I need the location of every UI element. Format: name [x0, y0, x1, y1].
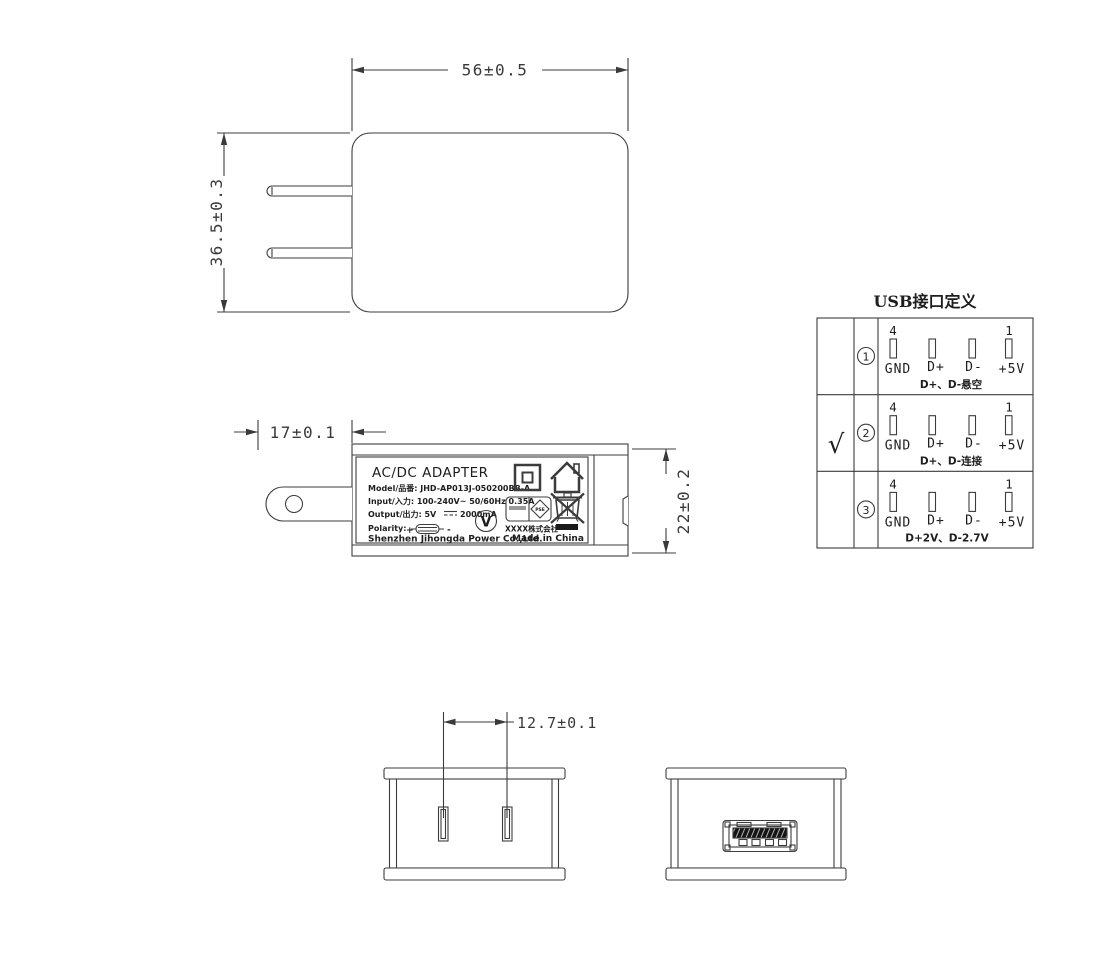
usb-table-border: [817, 318, 1033, 548]
plug-face-top-cap: [384, 768, 565, 779]
usb-face-bottom-cap: [666, 868, 846, 880]
dimension-depth: 22±0.2: [632, 449, 693, 553]
pinout-row-2: 2 4 1 GND D+ D- +5V D+、D-连接: [858, 400, 1026, 468]
usb-contact-1: [739, 840, 747, 846]
pin-label-dminus: D-: [965, 513, 983, 528]
technical-drawing-page: 56±0.5 36.5±0.3 AC/DC ADAPTER Model/品番: …: [0, 0, 1100, 953]
usb-face-top-cap: [666, 768, 846, 779]
pin-label-5v: +5V: [999, 439, 1025, 454]
label-output: Output/出力: 5V: [368, 509, 437, 519]
pin-label-dminus: D-: [965, 360, 983, 375]
label-title: AC/DC ADAPTER: [372, 465, 489, 481]
pin-5v: [1006, 416, 1013, 435]
plug-face-bottom-cap: [384, 868, 565, 880]
weee-bar: [556, 524, 578, 530]
pinout-row-1: 1 4 1 GND D+ D- +5V D+、D-悬空: [858, 323, 1026, 391]
plug-face-view: 12.7±0.1: [384, 712, 597, 880]
pin-label-5v: +5V: [999, 362, 1025, 377]
pin-gnd: [890, 339, 897, 358]
pse-text: PSE: [535, 507, 545, 513]
pin-label-dminus: D-: [965, 437, 983, 452]
adapter-body-front: [352, 133, 628, 312]
ac-prong-lower: [267, 248, 352, 258]
pin-label-gnd: GND: [885, 515, 911, 530]
pin-label-5v: +5V: [999, 515, 1025, 530]
label-model: Model/品番: JHD-AP013J-050200BB-A: [368, 483, 531, 493]
label-made-in: Made in China: [512, 534, 584, 544]
label-company-jp: XXXX株式会社: [505, 524, 559, 534]
dim-depth-text: 22±0.2: [674, 468, 693, 535]
pinout-row-3: 3 4 1 GND D+ D- +5V D+2V、D-2.7V: [858, 476, 1026, 544]
pin-label-gnd: GND: [885, 439, 911, 454]
label-polarity: Polarity:: [368, 524, 406, 533]
usb-contact-3: [766, 840, 774, 846]
dim-height-text: 36.5±0.3: [207, 177, 226, 266]
row-number: 1: [863, 351, 870, 364]
tuv-microtext: [509, 506, 526, 510]
dimension-height: 36.5±0.3: [207, 133, 350, 312]
row-number: 3: [863, 504, 870, 517]
pin-5v: [1006, 492, 1013, 511]
pin-4-number: 4: [889, 323, 897, 338]
pin-gnd: [890, 492, 897, 511]
dim-pitch-text: 12.7±0.1: [517, 714, 597, 732]
row-note: D+、D-连接: [920, 455, 983, 468]
pin-gnd: [890, 416, 897, 435]
selected-checkmark: √: [828, 430, 845, 460]
pin-label-dplus: D+: [927, 360, 945, 375]
adapter-drawing: 56±0.5 36.5±0.3 AC/DC ADAPTER Model/品番: …: [0, 0, 1100, 953]
usb-pinout-table: USB接口定义 √ 1 4 1 GND D+ D- +5V D+、D-悬空 2 …: [817, 292, 1033, 548]
usb-contact-4: [779, 840, 787, 846]
usb-face-view: [666, 768, 846, 880]
pin-dplus: [929, 492, 936, 511]
pin-5v: [1006, 339, 1013, 358]
pin-4-number: 4: [889, 476, 897, 491]
rating-label: AC/DC ADAPTER Model/品番: JHD-AP013J-05020…: [356, 457, 588, 545]
dim-prong-text: 17±0.1: [270, 423, 337, 442]
dimension-width: 56±0.5: [352, 58, 628, 131]
pin-1-number: 1: [1005, 323, 1013, 338]
pin-dminus: [969, 492, 976, 511]
row-number: 2: [863, 427, 870, 440]
pin-label-gnd: GND: [885, 362, 911, 377]
pin-dminus: [969, 339, 976, 358]
svg-text:V: V: [481, 515, 492, 531]
usb-contact-2: [752, 840, 760, 846]
pin-label-dplus: D+: [927, 513, 945, 528]
label-output-current: 2000mA: [460, 510, 498, 519]
pin-dplus: [929, 339, 936, 358]
plug-face-body: [390, 779, 559, 868]
dim-width-text: 56±0.5: [462, 61, 529, 80]
pin-4-number: 4: [889, 400, 897, 415]
usb-table-title: USB接口定义: [873, 292, 976, 311]
pin-dminus: [969, 416, 976, 435]
pin-dplus: [929, 416, 936, 435]
side-view: AC/DC ADAPTER Model/品番: JHD-AP013J-05020…: [234, 420, 693, 556]
row-note: D+、D-悬空: [920, 378, 982, 391]
ac-prong-side: [266, 487, 352, 521]
prong-hole: [286, 496, 303, 513]
pin-1-number: 1: [1005, 476, 1013, 491]
ac-prong-upper: [267, 186, 352, 196]
pin-1-number: 1: [1005, 400, 1013, 415]
pin-label-dplus: D+: [927, 437, 945, 452]
front-view: 56±0.5 36.5±0.3: [207, 58, 628, 312]
usb-a-port: [723, 821, 797, 852]
row-note: D+2V、D-2.7V: [905, 532, 989, 544]
